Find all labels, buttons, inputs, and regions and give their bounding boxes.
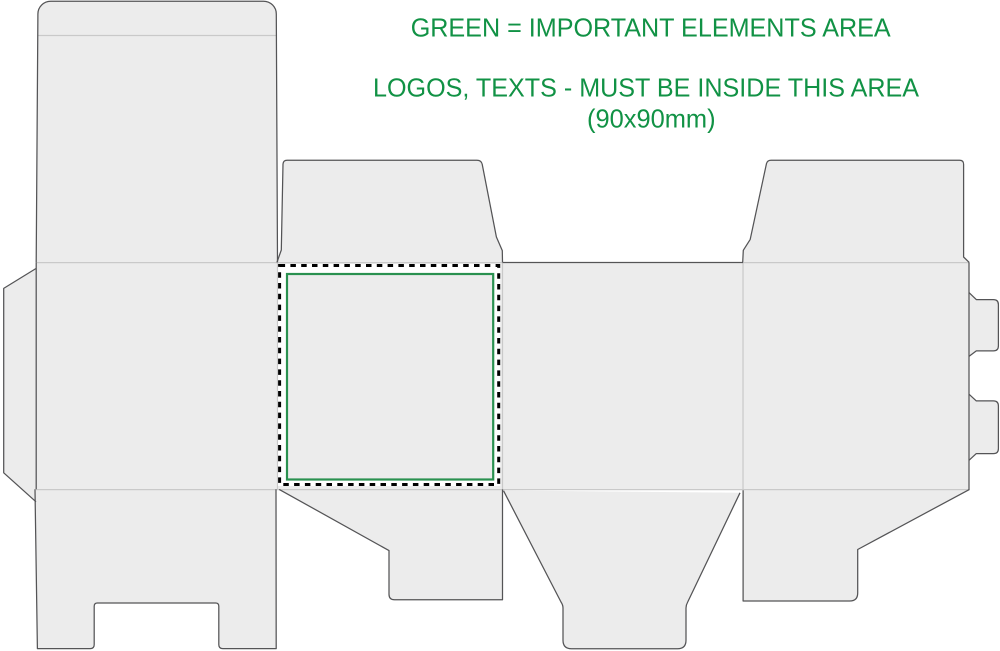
svg-text:GREEN = IMPORTANT ELEMENTS ARE: GREEN = IMPORTANT ELEMENTS AREA	[411, 13, 892, 43]
svg-text:LOGOS, TEXTS - MUST BE INSIDE: LOGOS, TEXTS - MUST BE INSIDE THIS AREA	[373, 73, 920, 103]
svg-text:(90x90mm): (90x90mm)	[587, 104, 716, 134]
